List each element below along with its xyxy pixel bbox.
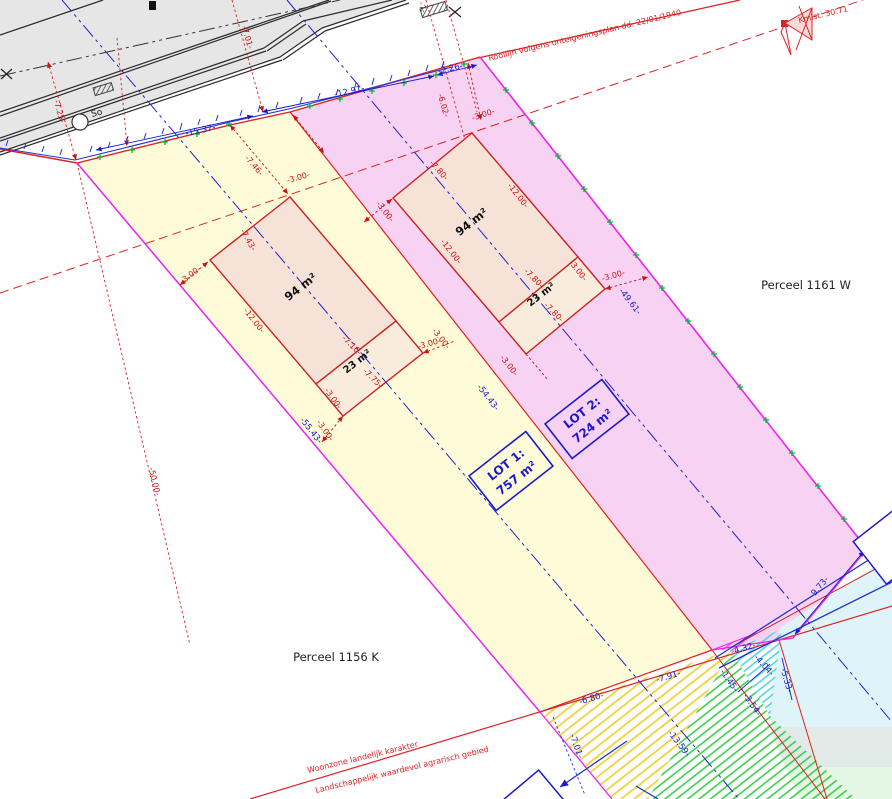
road-sign-marker xyxy=(149,1,156,10)
utility-marker-circle xyxy=(72,114,88,130)
parcel-right-label: Perceel 1161 W xyxy=(761,278,851,292)
survey-plan-drawing: LOT 1: 757 m² LOT 2: 724 m² (6 94 m² 23 … xyxy=(0,0,892,799)
road-cross-icon xyxy=(449,7,461,17)
bottom-label-box xyxy=(490,770,565,799)
kmlst-note: Kmlst: 30.71 xyxy=(797,4,848,25)
parcel-left-label: Perceel 1156 K xyxy=(293,650,379,664)
rooilijn-note: Rooilijn volgens onteigeningsplan dd. 22… xyxy=(487,8,682,63)
survey-plan-canvas: LOT 1: 757 m² LOT 2: 724 m² (6 94 m² 23 … xyxy=(0,0,892,799)
dim-label: -50.00- xyxy=(147,466,162,496)
